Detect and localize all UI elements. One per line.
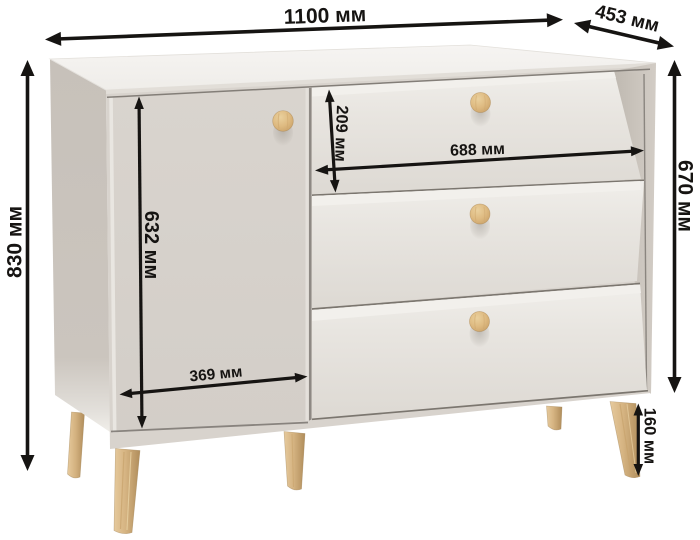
svg-text:632 мм: 632 мм xyxy=(140,211,162,280)
svg-text:160 мм: 160 мм xyxy=(641,408,659,465)
svg-text:670 мм: 670 мм xyxy=(674,160,697,232)
svg-text:688 мм: 688 мм xyxy=(450,141,505,160)
svg-text:830 мм: 830 мм xyxy=(4,206,27,278)
svg-text:209 мм: 209 мм xyxy=(331,105,351,162)
svg-text:1100 мм: 1100 мм xyxy=(283,3,366,29)
